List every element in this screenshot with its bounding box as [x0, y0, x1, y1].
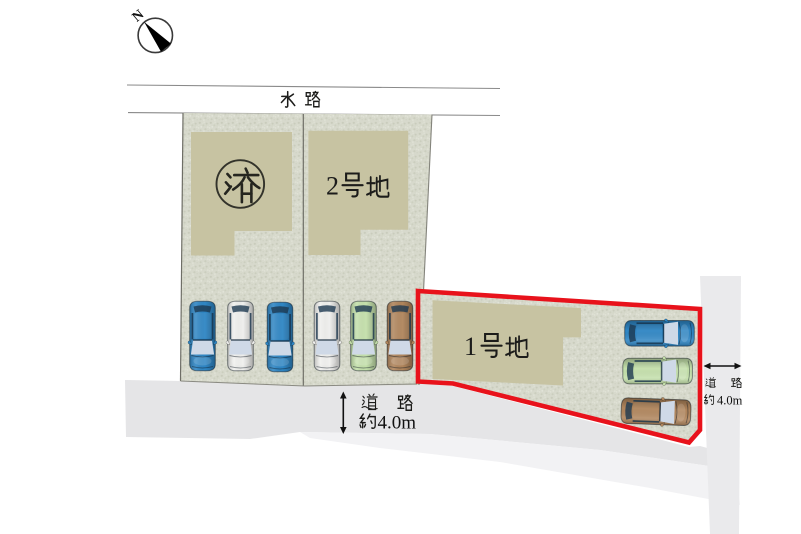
svg-text:1: 1: [464, 332, 477, 361]
svg-text:4.0m: 4.0m: [717, 394, 743, 408]
svg-text:4.0m: 4.0m: [378, 413, 417, 434]
svg-text:2: 2: [326, 172, 339, 201]
